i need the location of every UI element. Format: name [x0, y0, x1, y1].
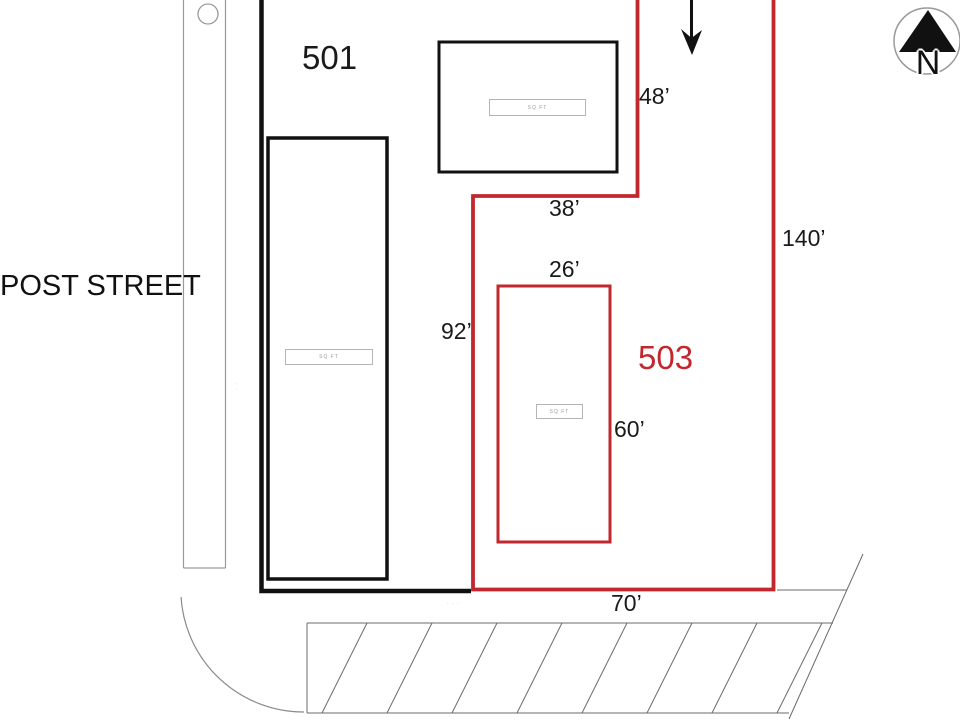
- hatch-diagonal-line: [387, 623, 432, 713]
- compass-north-letter: N: [909, 44, 947, 83]
- hatch-diagonal-line: [712, 623, 757, 713]
- lot-501-label: 501: [302, 41, 357, 74]
- hatch-diagonal-line: [582, 623, 627, 713]
- hatch-diagonal-line: [452, 623, 497, 713]
- dimension-26ft: 26’: [549, 258, 580, 281]
- dimension-92ft: 92’: [441, 320, 472, 343]
- utility-circle-icon: [198, 4, 218, 24]
- hatch-diagonal-line: [777, 623, 822, 713]
- sidewalk-hatch-area: [307, 554, 863, 719]
- building-red-info-box: SQ FT: [536, 404, 583, 419]
- dimension-140ft: 140’: [782, 227, 825, 250]
- dimension-70ft: 70’: [611, 592, 642, 615]
- dimension-60ft: 60’: [614, 418, 645, 441]
- hatch-diagonal-line: [647, 623, 692, 713]
- building-left-info-box: SQ FT: [285, 349, 373, 365]
- street-name-label: POST STREET: [0, 272, 201, 301]
- dimension-38ft: 38’: [549, 197, 580, 220]
- dimension-48ft: 48’: [639, 85, 670, 108]
- site-plan-diagram: POST STREET 501 503 48’ 38’ 140’ 26’ 92’…: [0, 0, 960, 720]
- hatch-diagonal-line: [517, 623, 562, 713]
- site-plan-linework: [0, 0, 960, 720]
- hatch-diagonal-line: [322, 623, 367, 713]
- lot-503-boundary: [473, 0, 774, 590]
- building-top-info-box: SQ FT: [489, 99, 586, 116]
- lot-503-label: 503: [638, 341, 693, 374]
- hatch-long-diagonal-line: [789, 554, 863, 719]
- tiny-note-west: · ·: [233, 383, 239, 391]
- corner-curb-arc: [181, 597, 304, 712]
- tiny-note-bottom: · · ·: [447, 601, 460, 607]
